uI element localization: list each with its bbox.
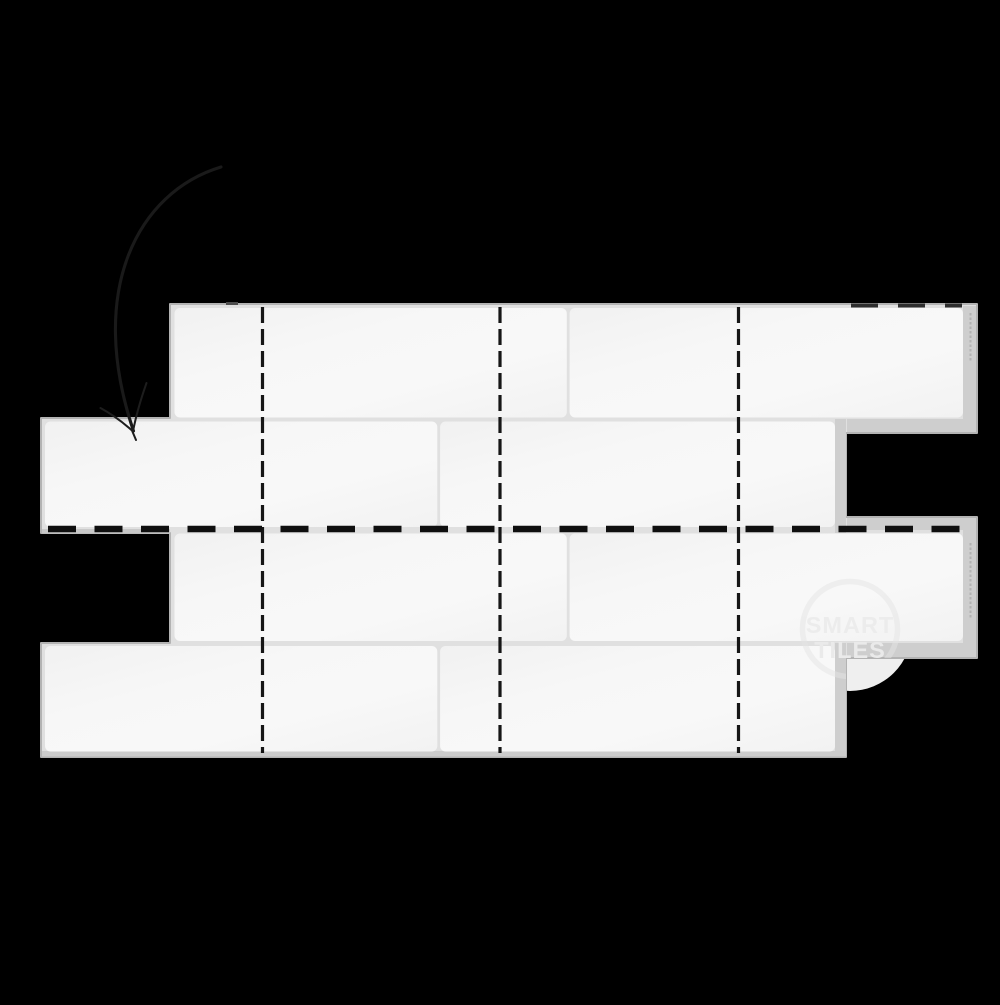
svg-text:SMART: SMART <box>806 612 895 638</box>
